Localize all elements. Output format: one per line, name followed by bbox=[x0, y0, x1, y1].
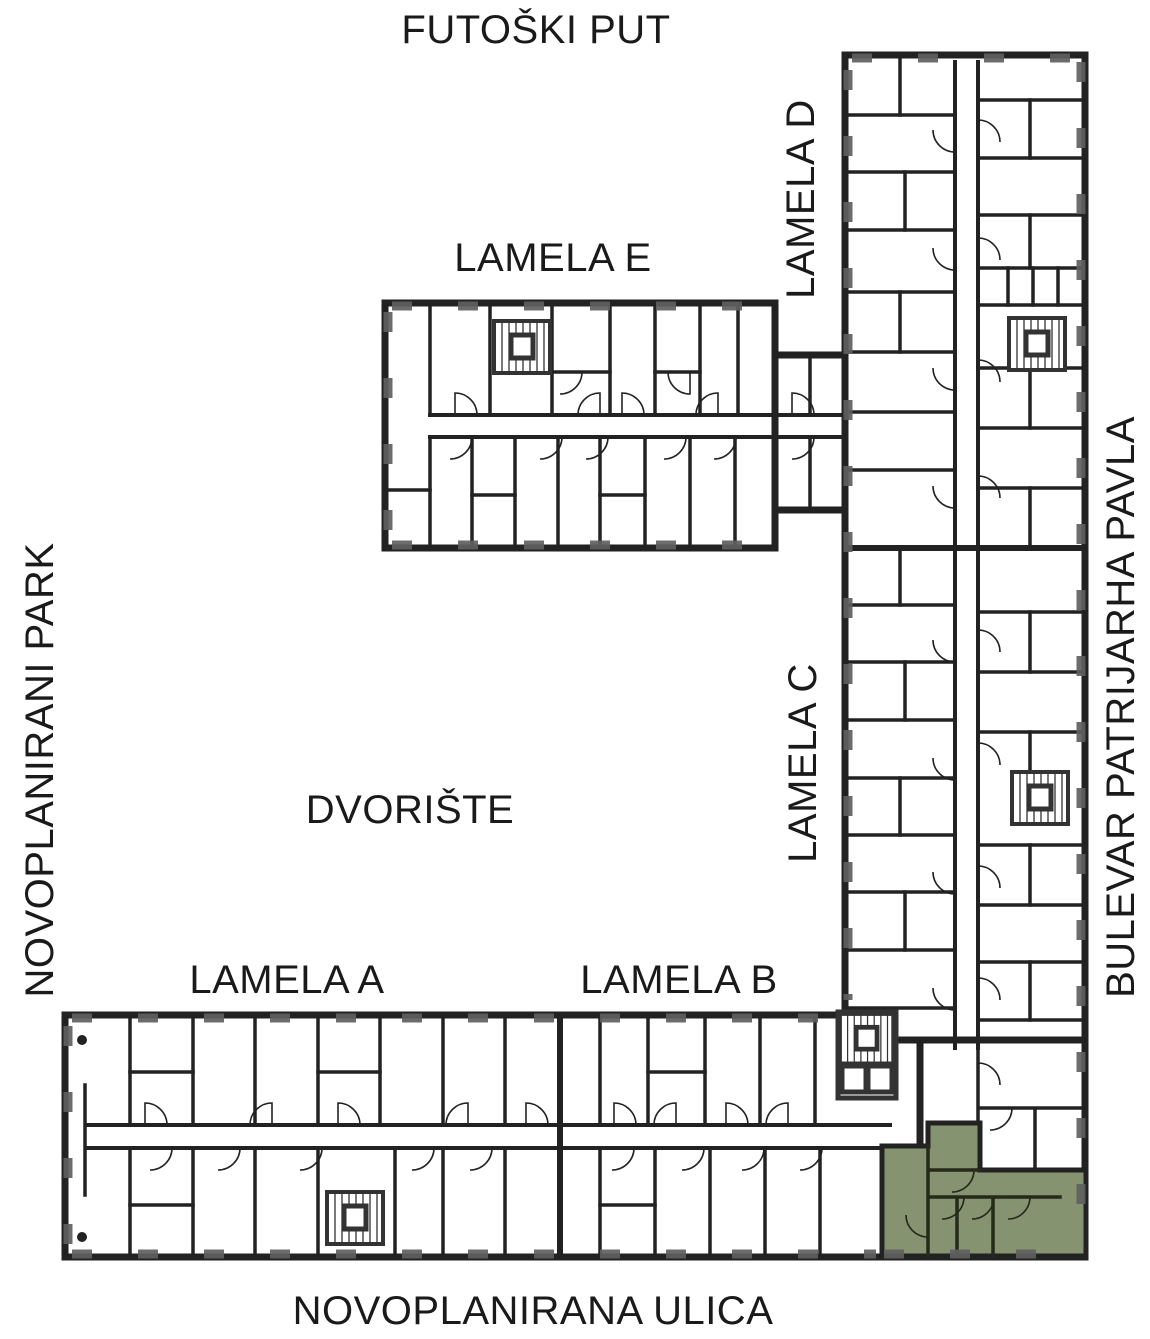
lamela-e-block bbox=[385, 303, 775, 548]
street-label-left: NOVOPLANIRANI PARK bbox=[20, 542, 60, 997]
staircase-icon bbox=[327, 1192, 383, 1244]
courtyard-label: DVORIŠTE bbox=[306, 790, 514, 830]
lamela-e-label: LAMELA E bbox=[454, 238, 651, 278]
street-label-bottom: NOVOPLANIRANA ULICA bbox=[293, 1291, 774, 1331]
staircase-icon bbox=[840, 1014, 893, 1063]
street-label-top: FUTOŠKI PUT bbox=[401, 10, 670, 50]
elevator-icon bbox=[842, 1066, 866, 1092]
column-dot bbox=[77, 1232, 87, 1242]
lamela-b-label: LAMELA B bbox=[580, 960, 777, 1000]
column-dot bbox=[77, 1035, 87, 1045]
site-plan-page: { "labels": { "street_top": "FUTOŠKI PUT… bbox=[0, 0, 1150, 1339]
staircase-icon bbox=[1009, 318, 1065, 370]
lamela-c-label: LAMELA C bbox=[783, 663, 823, 863]
lamela-d-label: LAMELA D bbox=[781, 99, 821, 299]
elevator-icon bbox=[868, 1066, 892, 1092]
staircase-icon bbox=[1012, 772, 1068, 824]
street-label-right: BULEVAR PATRIJARHA PAVLA bbox=[1101, 416, 1141, 998]
staircase-icon bbox=[494, 321, 550, 373]
floor-plan-svg bbox=[0, 0, 1150, 1339]
lamela-a-label: LAMELA A bbox=[189, 960, 384, 1000]
